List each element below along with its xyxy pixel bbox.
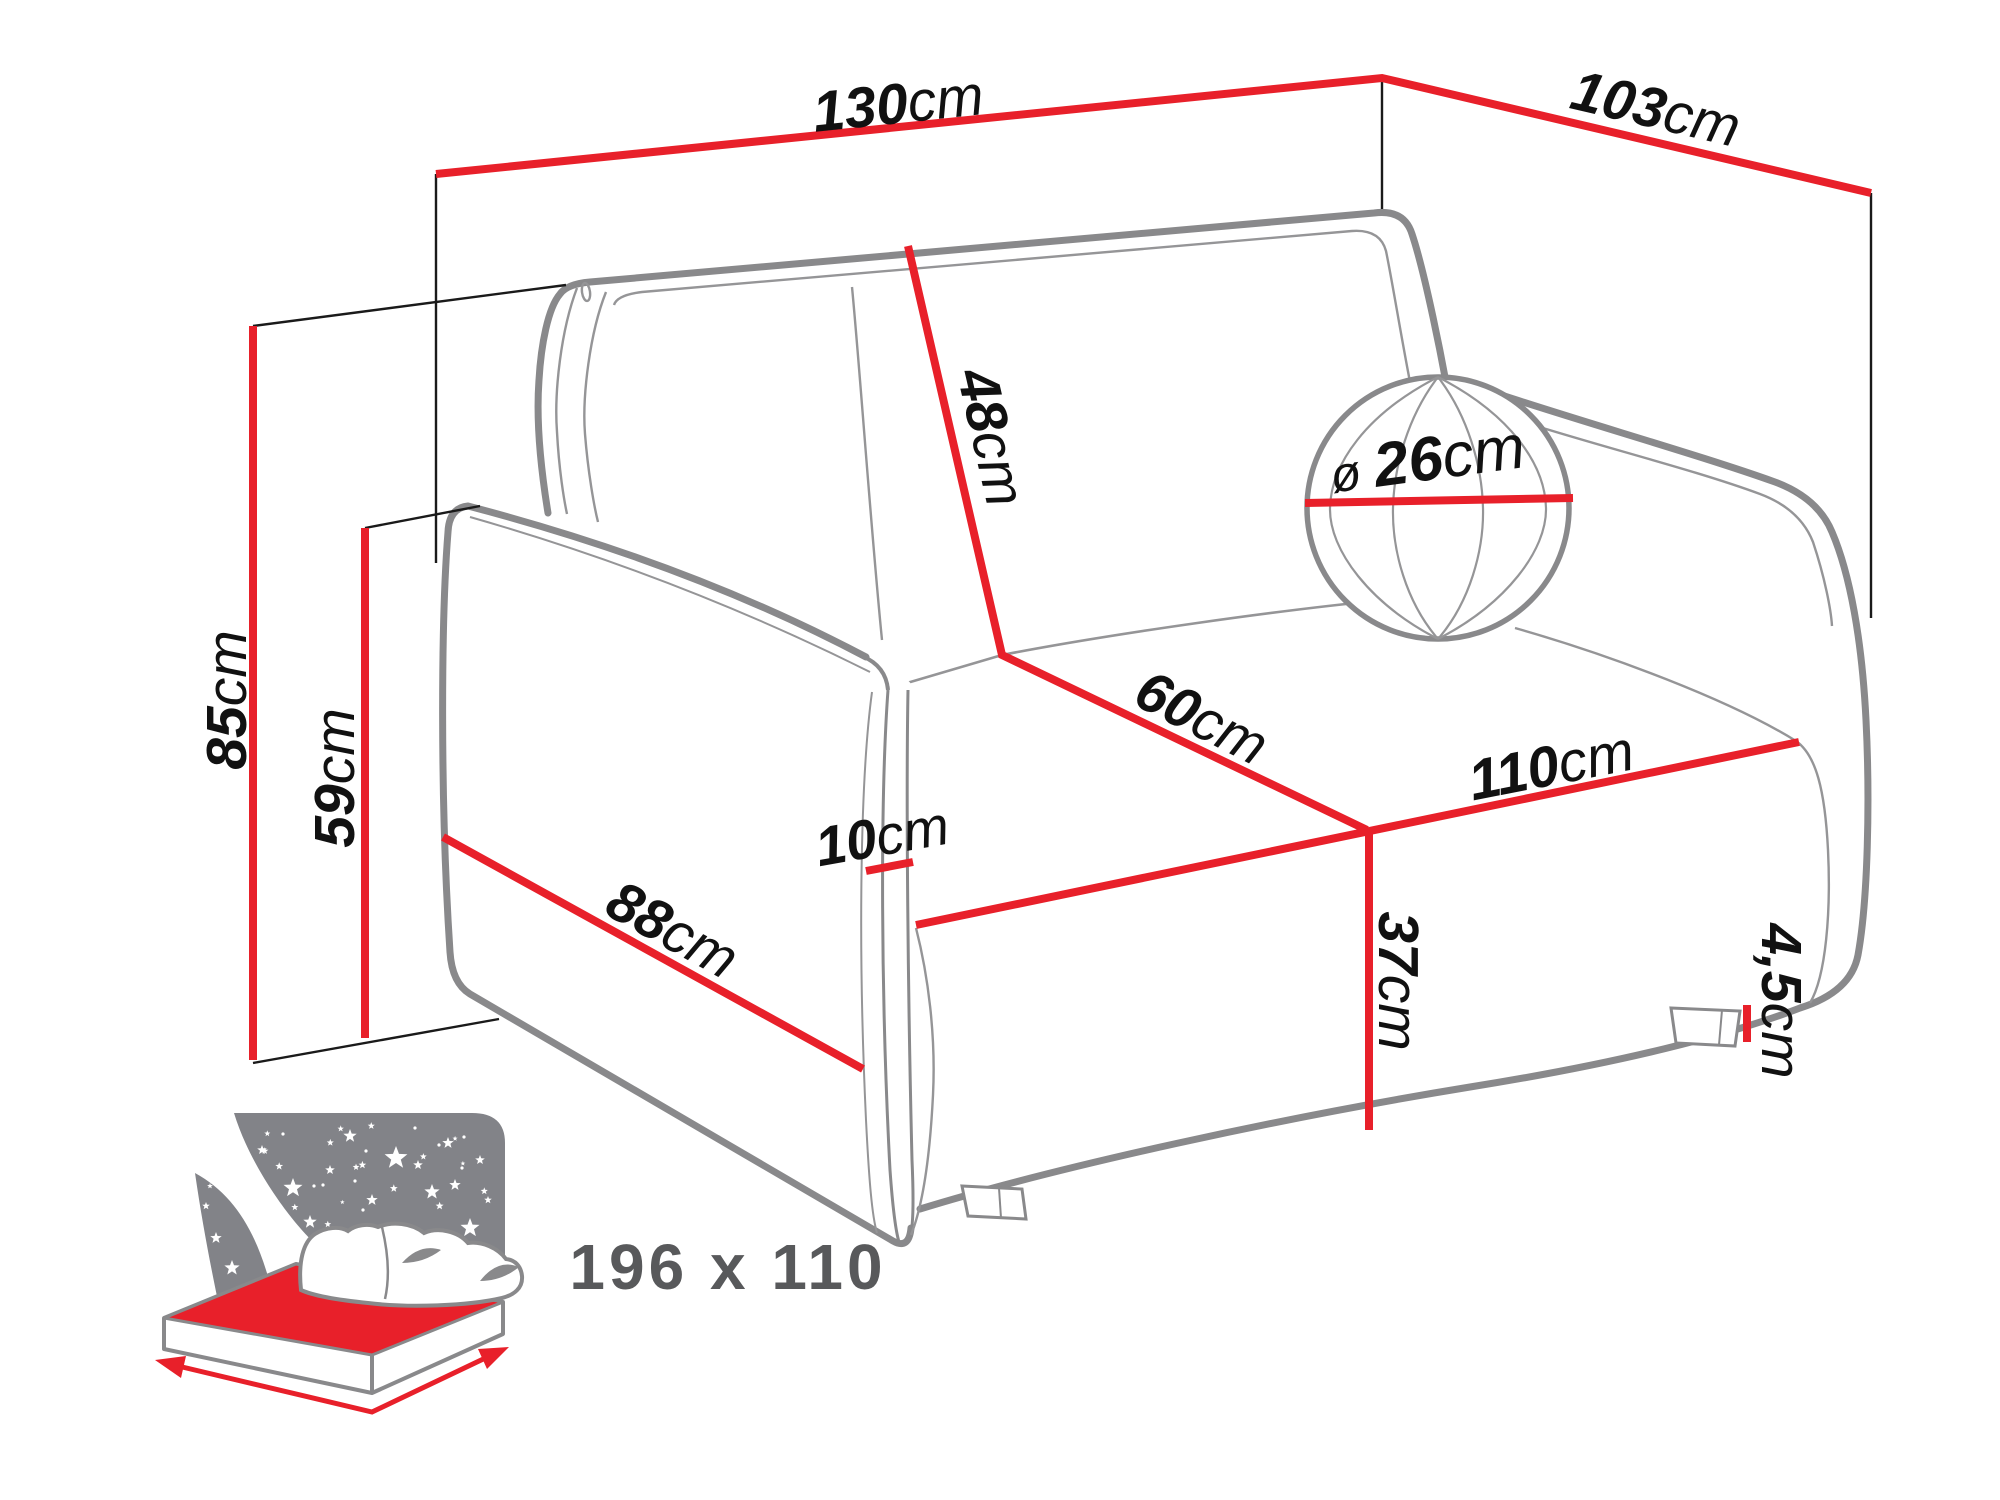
svg-text:37cm: 37cm — [1366, 911, 1430, 1050]
svg-text:85cm: 85cm — [195, 630, 259, 769]
svg-text:196 x 110: 196 x 110 — [569, 1231, 886, 1303]
svg-text:4,5cm: 4,5cm — [1749, 922, 1813, 1078]
svg-text:59cm: 59cm — [303, 708, 367, 847]
